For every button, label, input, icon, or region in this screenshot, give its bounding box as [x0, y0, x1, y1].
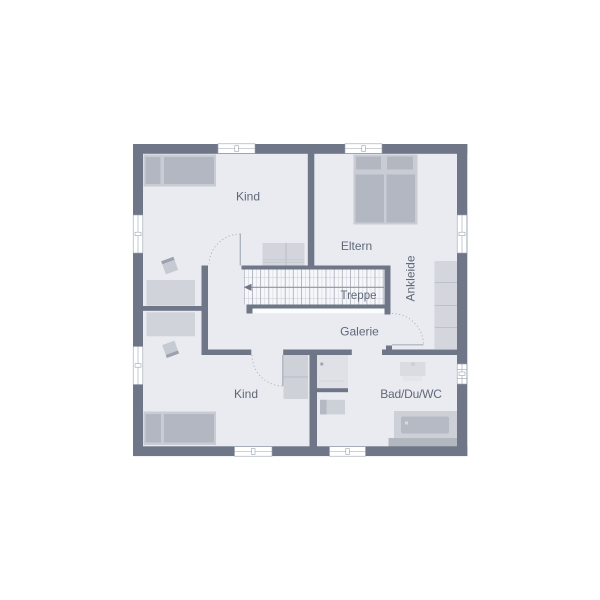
svg-text:Treppe: Treppe [340, 290, 376, 302]
svg-text:Bad/Du/WC: Bad/Du/WC [380, 387, 442, 401]
svg-text:Kind: Kind [236, 190, 260, 204]
svg-text:Eltern: Eltern [341, 239, 372, 253]
svg-text:Galerie: Galerie [340, 325, 379, 339]
svg-text:Ankleide: Ankleide [404, 255, 418, 301]
svg-text:Kind: Kind [234, 387, 258, 401]
